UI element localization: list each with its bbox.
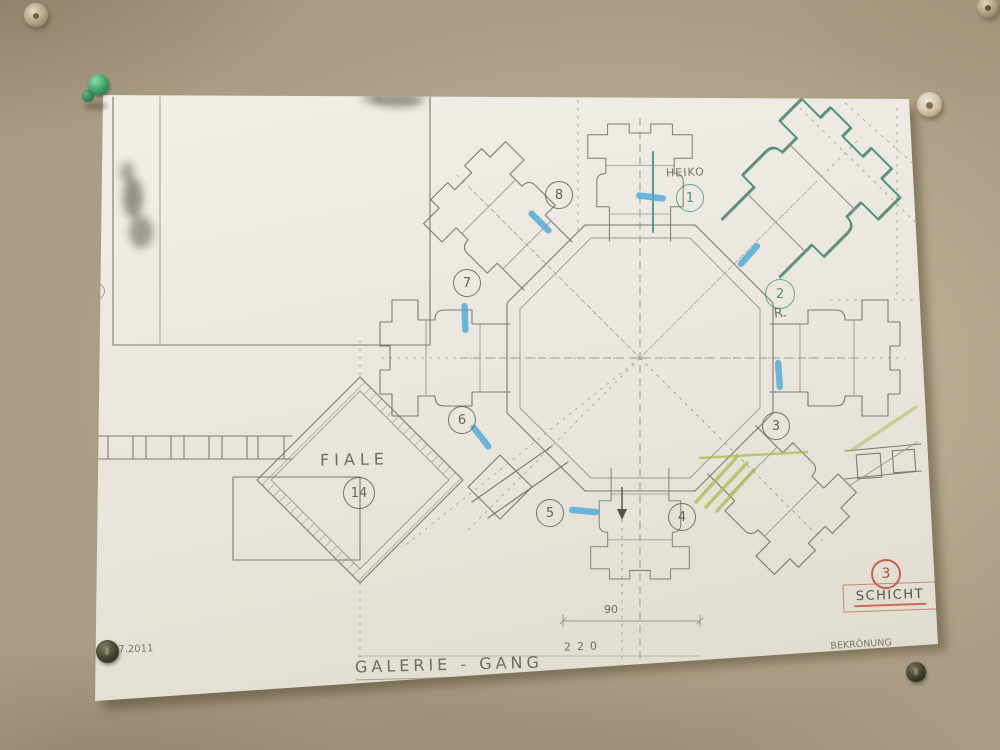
heiko-label: HEIKO bbox=[666, 165, 705, 179]
fiale-label: FIALE bbox=[320, 449, 389, 469]
corkboard-photo: HEIKO R. FIALE GALERIE - GANG 90 220 07.… bbox=[0, 0, 1000, 750]
marker-4: 4 bbox=[668, 503, 696, 531]
metal-disc-pin-top-left bbox=[24, 3, 48, 27]
marker-5: 5 bbox=[536, 499, 564, 527]
marker-7: 7 bbox=[453, 269, 481, 297]
green-highlights bbox=[696, 407, 916, 511]
south-arrow bbox=[617, 487, 627, 520]
marker-6: 6 bbox=[448, 406, 476, 434]
marker-8: 8 bbox=[545, 181, 573, 209]
marker-14: 14 bbox=[343, 477, 375, 509]
marker-3: 3 bbox=[762, 412, 790, 440]
schicht-stamp: SCHICHT bbox=[843, 581, 938, 612]
plan-drawing bbox=[0, 0, 1000, 750]
marker-2: 2 bbox=[765, 279, 795, 309]
dimension-90: 90 bbox=[604, 603, 618, 616]
left-battlement bbox=[95, 436, 292, 459]
dimension-lines bbox=[358, 615, 703, 656]
buttress-arms bbox=[380, 88, 911, 583]
marker-1: 1 bbox=[676, 184, 704, 212]
dimension-220: 220 bbox=[564, 639, 603, 653]
construction-lines bbox=[360, 92, 918, 688]
dark-pin-bottom-right bbox=[906, 662, 926, 682]
dark-pin-bottom-left bbox=[96, 640, 119, 663]
blue-ticks bbox=[461, 192, 783, 515]
graphite-smudges bbox=[120, 93, 424, 248]
beige-pin bbox=[917, 92, 942, 117]
drawing-sheet: HEIKO R. FIALE GALERIE - GANG 90 220 07.… bbox=[0, 0, 1000, 750]
